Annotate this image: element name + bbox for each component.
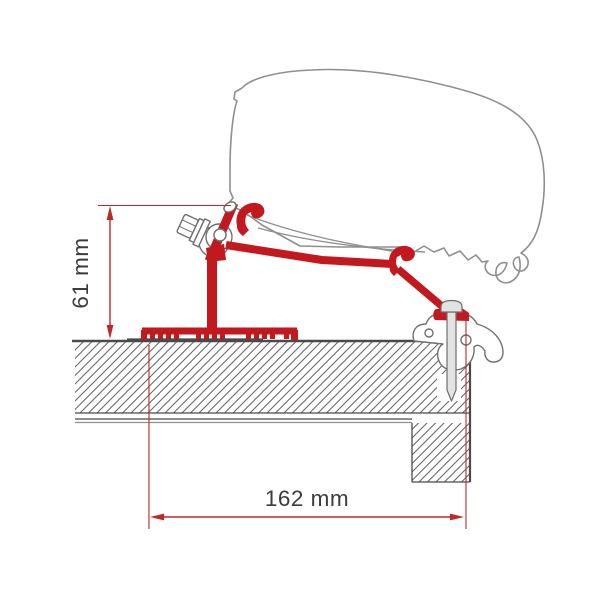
roof-cross-section xyxy=(72,340,470,483)
dimension-label-height: 61 mm xyxy=(68,237,93,308)
arrow-left-icon xyxy=(150,514,164,521)
technical-diagram: 61 mm 162 mm xyxy=(0,0,600,600)
screw-shaft xyxy=(447,312,456,401)
arrow-down-icon xyxy=(107,325,114,339)
wall-hatch xyxy=(412,423,470,482)
arrow-up-icon xyxy=(107,206,114,220)
screw-head xyxy=(441,301,462,313)
bolt-end-nut xyxy=(214,229,226,241)
dimension-label-width: 162 mm xyxy=(265,486,349,511)
diagram-canvas: 61 mm 162 mm xyxy=(0,0,600,600)
arrow-right-icon xyxy=(450,514,464,521)
rail-profile-hole-left xyxy=(425,329,433,337)
base-rail-teeth xyxy=(150,334,289,339)
roof-panel-hatch xyxy=(75,342,470,413)
